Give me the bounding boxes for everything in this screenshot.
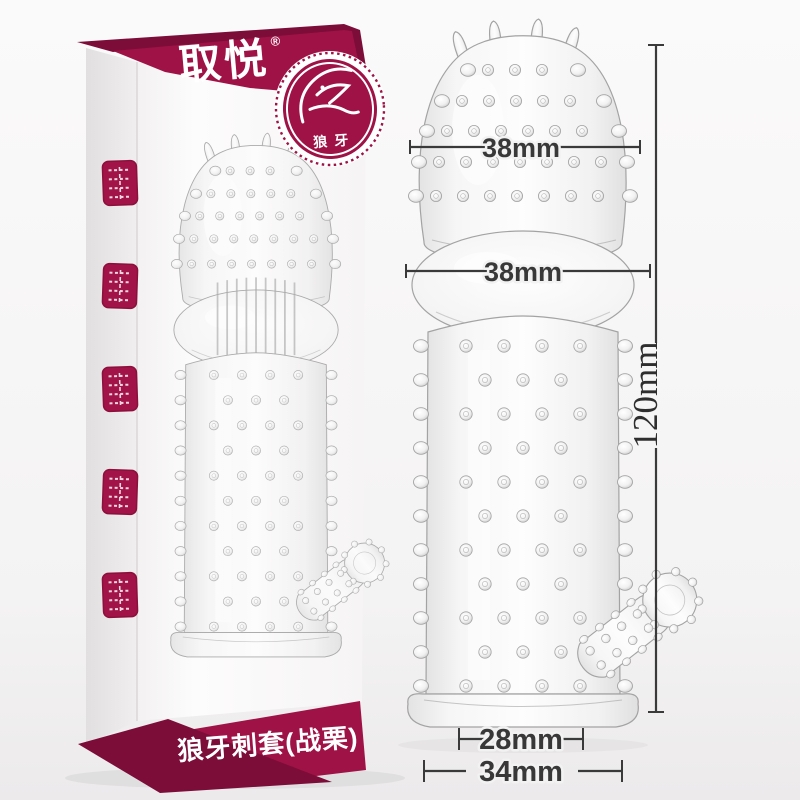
product-listing-image: 取悦 ® 狼牙 狼牙刺套(战栗) 38mm 3 <box>0 0 800 800</box>
badge-label: 狼牙 <box>313 131 356 150</box>
dimension-label-inner-diameter: 28mm <box>479 724 563 756</box>
seal-stamp <box>102 160 138 205</box>
product-box: 取悦 ® 狼牙 狼牙刺套(战栗) <box>77 24 399 793</box>
seal-stamp <box>102 263 138 308</box>
brand-logo: 取悦 <box>177 34 271 89</box>
seal-stamp <box>102 572 138 617</box>
scene: 取悦 ® 狼牙 狼牙刺套(战栗) 38mm 3 <box>0 0 800 800</box>
trademark-symbol: ® <box>270 33 281 49</box>
seal-stamp <box>102 469 138 514</box>
dimension-label-head-width: 38mm <box>482 133 560 163</box>
dimension-label-chamber-width: 38mm <box>484 257 562 287</box>
seal-stamp <box>102 366 138 411</box>
dimension-label-base-width: 34mm <box>479 756 563 788</box>
dimension-label-total-length: 120mm <box>626 342 665 449</box>
